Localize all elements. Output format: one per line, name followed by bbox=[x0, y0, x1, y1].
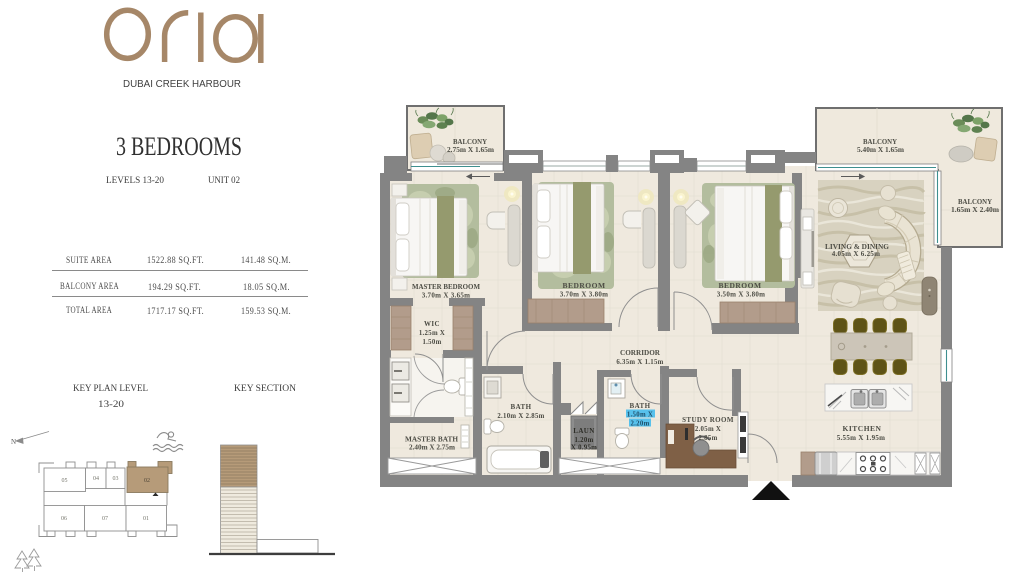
svg-text:KEY SECTION: KEY SECTION bbox=[234, 384, 296, 394]
svg-text:1.20m: 1.20m bbox=[574, 437, 593, 444]
svg-text:03: 03 bbox=[113, 476, 119, 482]
svg-text:1522.88 SQ.FT.: 1522.88 SQ.FT. bbox=[147, 255, 204, 265]
svg-text:KEY PLAN LEVEL: KEY PLAN LEVEL bbox=[73, 384, 148, 394]
svg-text:BATH: BATH bbox=[630, 402, 651, 410]
svg-text:141.48 SQ.M.: 141.48 SQ.M. bbox=[241, 255, 291, 265]
svg-text:5.55m X 1.95m: 5.55m X 1.95m bbox=[837, 434, 886, 442]
svg-text:DUBAI CREEK HARBOUR: DUBAI CREEK HARBOUR bbox=[123, 79, 241, 90]
svg-text:LEVELS 13-20: LEVELS 13-20 bbox=[106, 176, 164, 186]
svg-text:3.70m X 3.65m: 3.70m X 3.65m bbox=[422, 292, 471, 300]
svg-text:TOTAL AREA: TOTAL AREA bbox=[66, 305, 112, 315]
svg-text:X 0.95m: X 0.95m bbox=[571, 445, 597, 452]
svg-text:6.35m X 1.15m: 6.35m X 1.15m bbox=[616, 359, 663, 366]
svg-text:KITCHEN: KITCHEN bbox=[843, 424, 882, 433]
svg-text:1.50m X: 1.50m X bbox=[627, 412, 653, 419]
svg-text:01: 01 bbox=[143, 516, 149, 522]
svg-text:N: N bbox=[11, 438, 16, 446]
svg-text:2.40m X 2.75m: 2.40m X 2.75m bbox=[409, 445, 455, 452]
svg-text:18.05 SQ.M.: 18.05 SQ.M. bbox=[243, 282, 290, 292]
svg-text:MASTER BATH: MASTER BATH bbox=[405, 436, 459, 444]
svg-text:2.75m X 1.65m: 2.75m X 1.65m bbox=[447, 147, 494, 154]
svg-text:1.65m X 2.40m: 1.65m X 2.40m bbox=[951, 207, 999, 214]
svg-text:2.05m X: 2.05m X bbox=[695, 426, 721, 433]
svg-text:5.40m X 1.65m: 5.40m X 1.65m bbox=[857, 147, 904, 154]
svg-text:02: 02 bbox=[144, 478, 150, 484]
svg-text:2.10m X 2.85m: 2.10m X 2.85m bbox=[497, 413, 544, 420]
svg-text:1717.17 SQ.FT.: 1717.17 SQ.FT. bbox=[147, 306, 204, 316]
svg-text:3 BEDROOMS: 3 BEDROOMS bbox=[116, 132, 242, 161]
svg-text:05: 05 bbox=[62, 478, 68, 484]
svg-text:BALCONY: BALCONY bbox=[453, 138, 487, 146]
svg-text:WIC: WIC bbox=[424, 320, 440, 328]
svg-text:2.20m: 2.20m bbox=[630, 421, 649, 428]
svg-text:BEDROOM: BEDROOM bbox=[562, 281, 605, 290]
svg-text:3.50m X 3.80m: 3.50m X 3.80m bbox=[717, 291, 766, 299]
svg-text:BALCONY: BALCONY bbox=[863, 138, 897, 146]
svg-text:LAUN: LAUN bbox=[573, 427, 594, 435]
svg-text:UNIT 02: UNIT 02 bbox=[208, 176, 240, 186]
svg-text:BALCONY AREA: BALCONY AREA bbox=[60, 281, 119, 291]
svg-text:194.29 SQ.FT.: 194.29 SQ.FT. bbox=[148, 282, 201, 292]
svg-text:BEDROOM: BEDROOM bbox=[718, 281, 761, 290]
svg-text:04: 04 bbox=[93, 476, 99, 482]
svg-text:3.70m X 3.80m: 3.70m X 3.80m bbox=[560, 291, 609, 299]
svg-text:1.50m: 1.50m bbox=[422, 339, 441, 346]
svg-text:BALCONY: BALCONY bbox=[958, 198, 992, 206]
svg-text:2.85m: 2.85m bbox=[698, 435, 717, 442]
svg-text:CORRIDOR: CORRIDOR bbox=[620, 349, 661, 357]
svg-text:STUDY ROOM: STUDY ROOM bbox=[682, 416, 734, 424]
svg-text:07: 07 bbox=[102, 516, 108, 522]
svg-text:13-20: 13-20 bbox=[98, 400, 124, 410]
svg-text:1.25m X: 1.25m X bbox=[419, 330, 445, 337]
svg-text:MASTER BEDROOM: MASTER BEDROOM bbox=[412, 282, 480, 291]
svg-text:159.53 SQ.M.: 159.53 SQ.M. bbox=[241, 306, 291, 316]
svg-text:4.05m X 6.25m: 4.05m X 6.25m bbox=[832, 250, 881, 258]
svg-text:BATH: BATH bbox=[511, 403, 532, 411]
svg-text:SUITE AREA: SUITE AREA bbox=[66, 255, 112, 265]
svg-text:06: 06 bbox=[61, 516, 67, 522]
